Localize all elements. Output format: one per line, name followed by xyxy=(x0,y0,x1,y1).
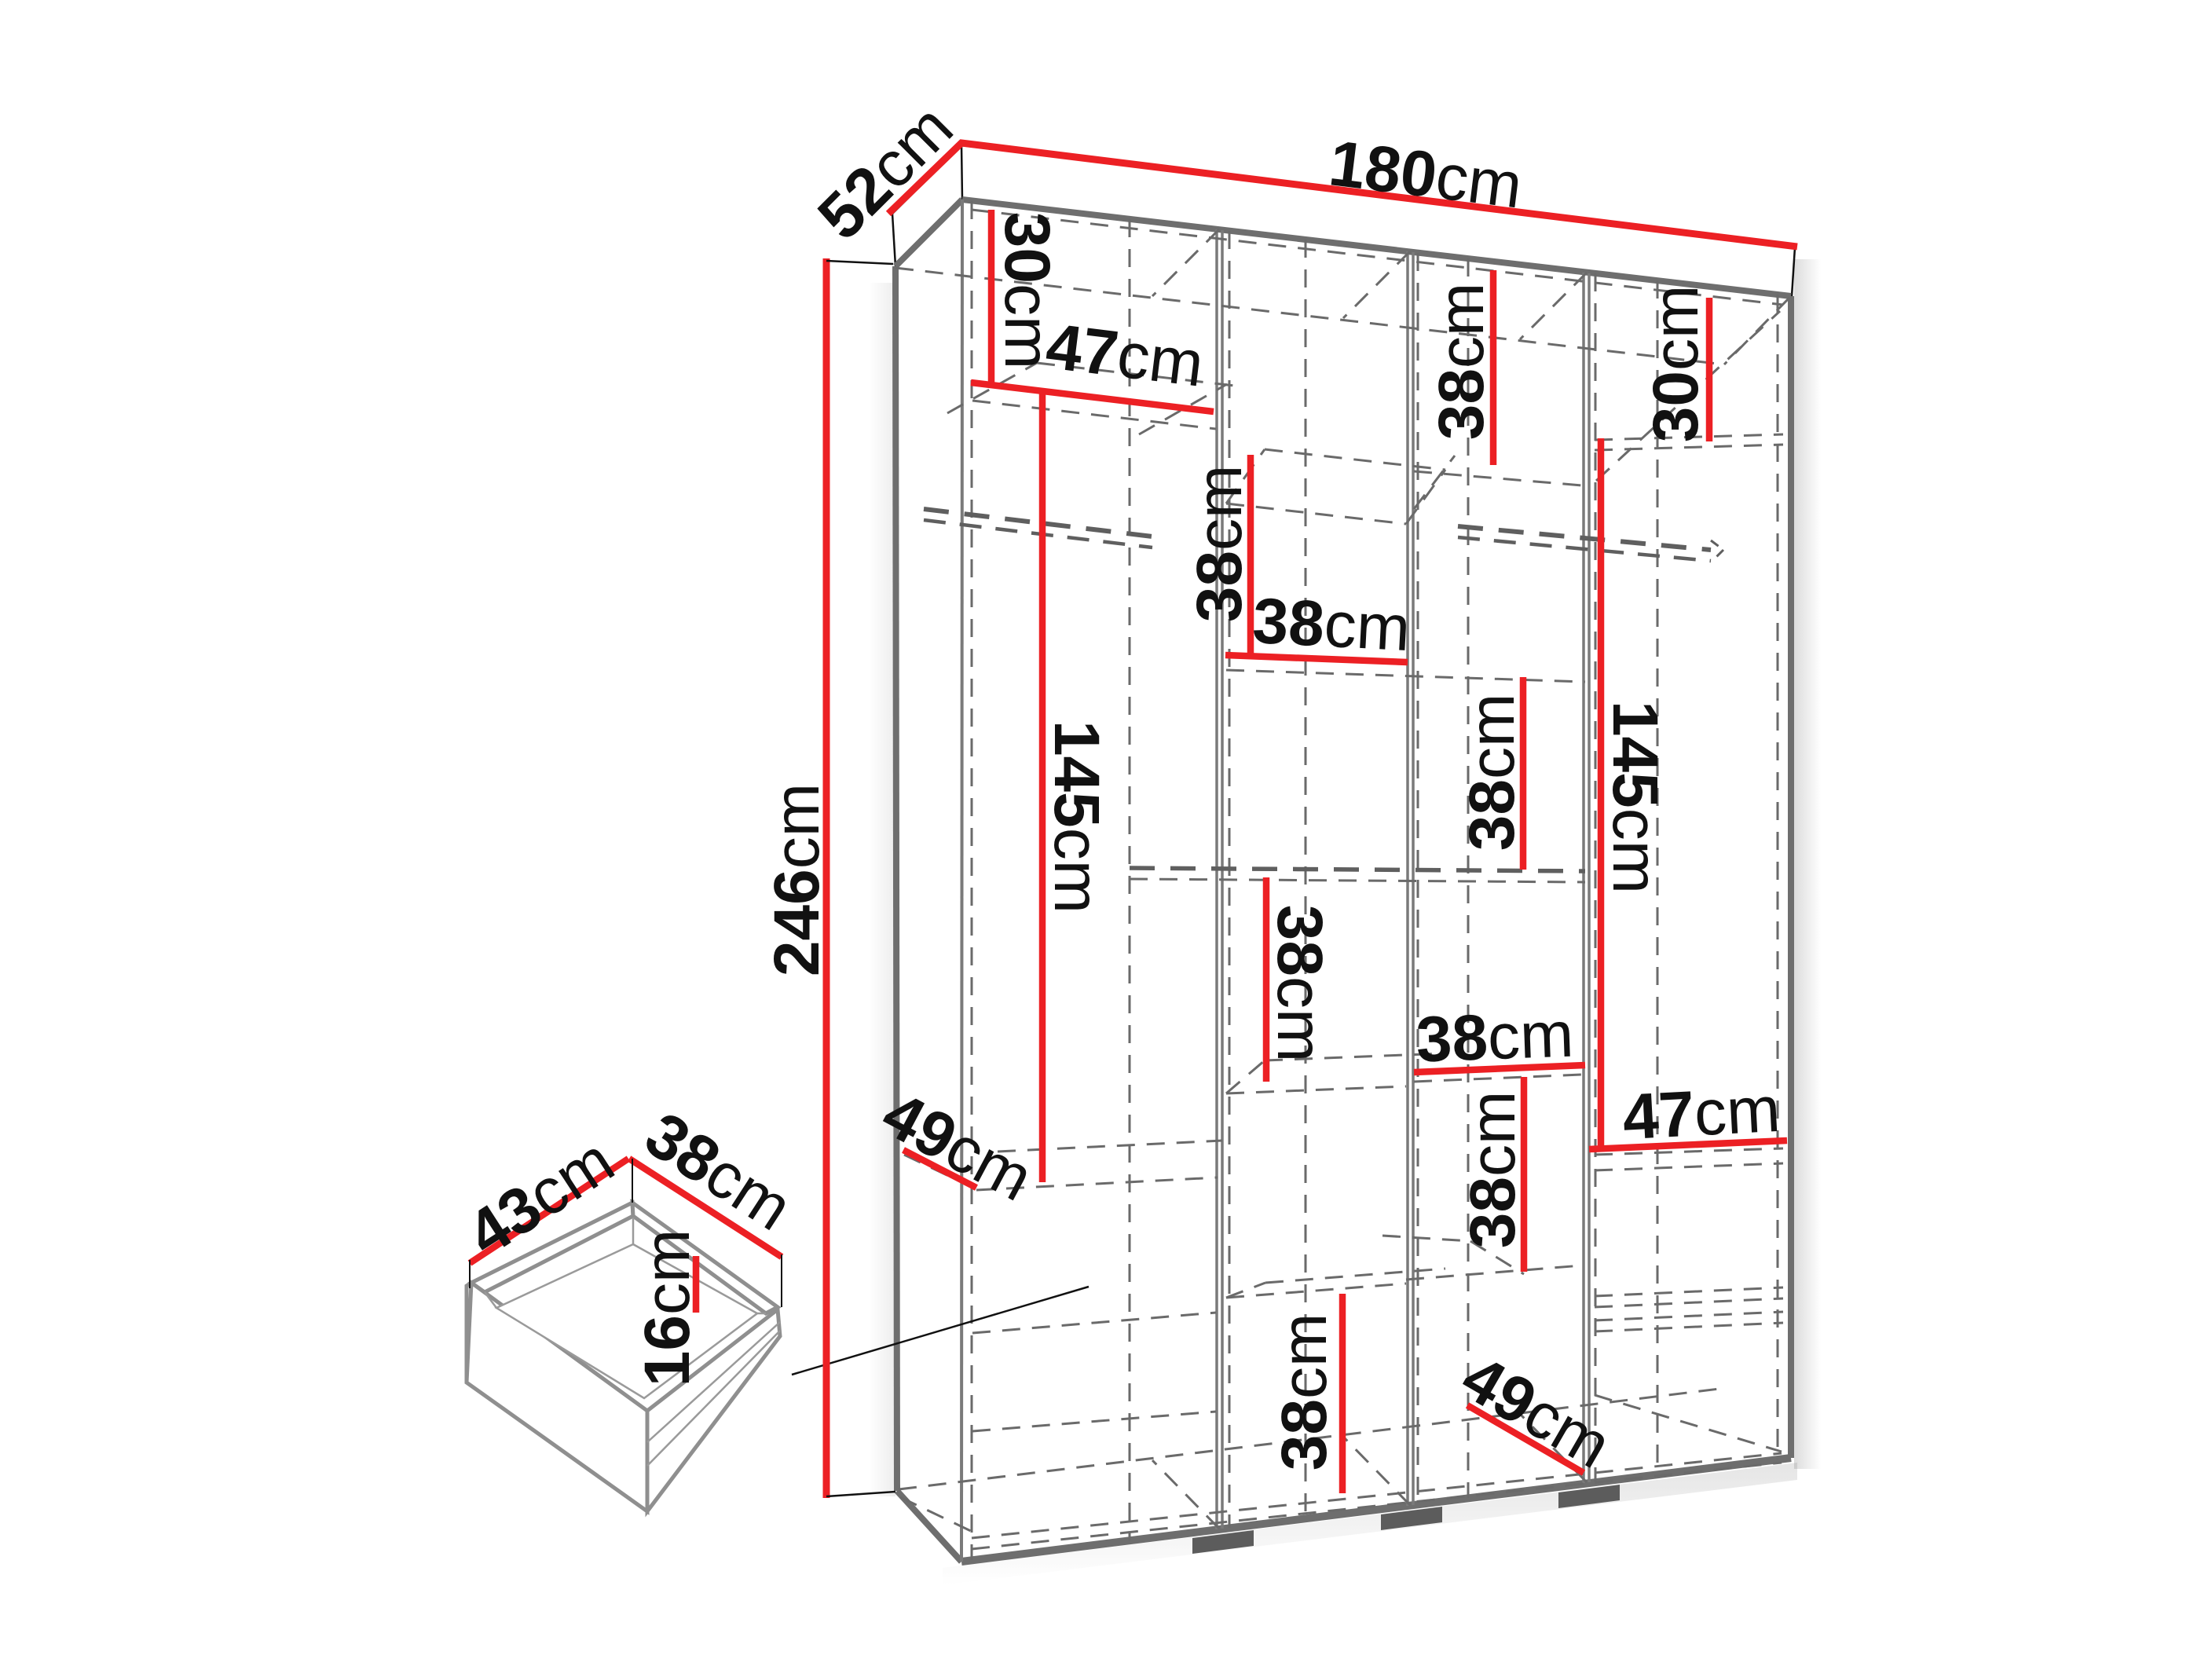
svg-text:38cm: 38cm xyxy=(1457,1091,1529,1249)
svg-text:38cm: 38cm xyxy=(1184,465,1255,623)
svg-text:38cm: 38cm xyxy=(1269,1313,1340,1471)
svg-text:38cm: 38cm xyxy=(1415,998,1575,1075)
svg-text:38cm: 38cm xyxy=(1456,694,1528,851)
svg-text:145cm: 145cm xyxy=(1042,720,1113,914)
svg-text:30cm: 30cm xyxy=(1640,285,1712,443)
svg-text:47cm: 47cm xyxy=(1621,1073,1782,1152)
svg-text:145cm: 145cm xyxy=(1600,701,1672,894)
svg-text:38cm: 38cm xyxy=(1265,905,1336,1063)
svg-text:38cm: 38cm xyxy=(1426,283,1497,441)
svg-text:246cm: 246cm xyxy=(761,783,833,976)
svg-text:38cm: 38cm xyxy=(1251,584,1412,664)
svg-text:16cm: 16cm xyxy=(632,1229,703,1387)
